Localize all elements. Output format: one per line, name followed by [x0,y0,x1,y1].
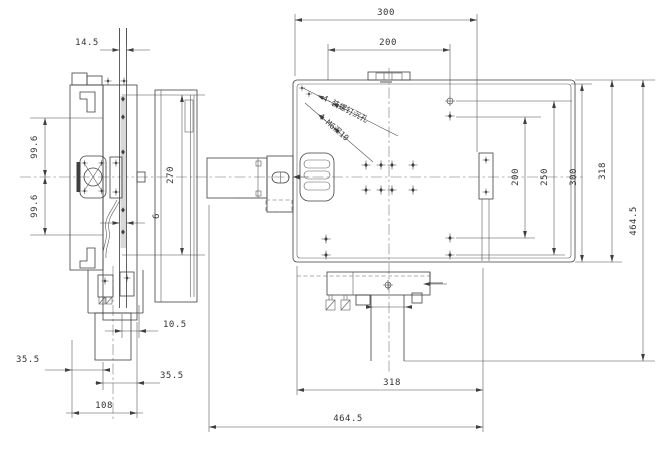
center-pointer [293,175,300,180]
plan-dimensions: 300 200 200 250 300 318 464.5 318 464.5 … [209,8,655,432]
drawing-canvas: 14.5 99.6 99.6 270 6 10.5 35.5 35.5 108 [0,0,672,459]
dim-35-5-left: 35.5 [16,355,40,365]
hole-mark [362,161,371,170]
dim-300-right: 300 [569,168,579,186]
cable-line [106,200,120,258]
corner-hole [306,91,312,97]
side-dimensions: 14.5 99.6 99.6 270 6 10.5 35.5 35.5 108 [16,28,205,418]
dim-200-top: 200 [379,38,397,48]
side-top-cap-a [72,73,87,85]
hole-mark [377,161,386,170]
dim-6: 6 [152,213,162,219]
bolt-hatch [106,297,112,304]
dim-270: 270 [166,166,176,184]
plan-view [207,72,575,361]
flange-bolt-mark [98,160,104,166]
dim-108: 108 [95,401,113,411]
knob-bar [304,160,330,168]
locating-hole [383,280,393,290]
foot [356,295,370,305]
coupling-housing [267,156,293,212]
hidden-base [266,200,292,212]
bracket-bolt-mark [112,188,119,195]
bolt-mark [101,277,108,284]
dim-14-5: 14.5 [75,38,99,48]
motor-tick [256,161,261,166]
bracket-bolt-mark [482,188,489,195]
knob-bar [304,182,330,190]
dim-318-bottom: 318 [383,378,401,388]
side-bottom-notch [80,248,95,268]
bottom-block [327,272,430,295]
dim-35-5-right: 35.5 [160,371,184,381]
bolt-hatch [99,297,105,304]
bolt-mark [123,274,130,281]
hole-mark [446,234,455,243]
flange-bolt-mark [81,160,87,166]
dim-10-5: 10.5 [163,320,187,330]
dim-318-right: 318 [598,162,608,180]
bracket-bolt-mark [112,159,119,166]
dim-300-top: 300 [377,8,395,18]
dim-464-5-bottom: 464.5 [333,414,363,424]
side-right-insert [185,100,193,132]
hole-mark [362,186,371,195]
hole-mark [409,186,418,195]
side-lower-frame [88,270,143,313]
hole-mark [377,186,386,195]
motor-side-bar [77,162,81,192]
dim-200-right: 200 [511,168,521,186]
knob-bar [304,171,330,179]
annotation-tapped: 4-M6深10 [317,112,351,143]
side-top-notch [80,92,95,112]
side-left-plate [70,85,103,270]
side-lower-block-a [98,275,113,297]
hole-mark [446,112,455,121]
corner-hole [299,85,305,91]
dim-99-6-lower: 99.6 [30,194,40,218]
side-top-cap-b [87,76,102,85]
bracket-bolt-mark [482,156,489,163]
bottom-step [430,272,443,283]
side-view [70,28,197,360]
dim-250-right: 250 [540,168,550,186]
flange-bolt-mark [98,188,104,194]
top-tab-hatch [380,79,392,83]
engineering-drawing: 14.5 99.6 99.6 270 6 10.5 35.5 35.5 108 [0,0,672,459]
foot [412,293,422,303]
bottom-protrusion [371,295,404,361]
through-hole [445,96,455,106]
side-right-plate-inner-lines [161,90,194,302]
flange-bolt-mark [81,188,87,194]
motor-tick [256,191,261,196]
rail-lines [482,199,489,261]
hole-mark [409,161,418,170]
dim-99-6-upper: 99.6 [30,135,40,159]
hole-mark [322,235,331,244]
dim-464-5-right: 464.5 [629,206,639,236]
screw-mark [104,77,111,84]
